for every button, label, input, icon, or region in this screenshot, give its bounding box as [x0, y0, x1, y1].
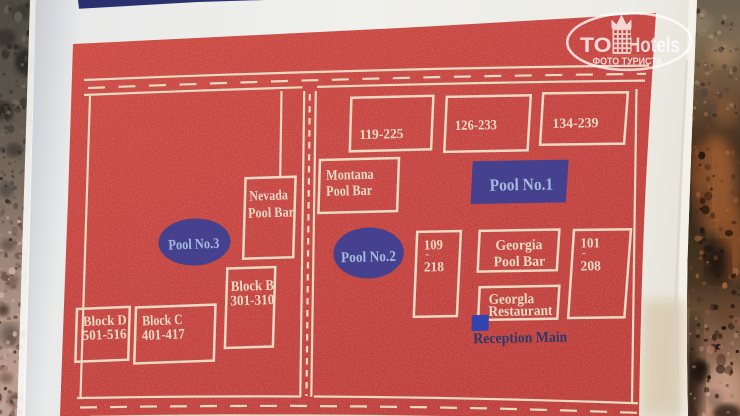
- svg-text:Hotels: Hotels: [628, 33, 680, 57]
- svg-text:ФОТО ТУРИСТА: ФОТО ТУРИСТА: [593, 56, 663, 68]
